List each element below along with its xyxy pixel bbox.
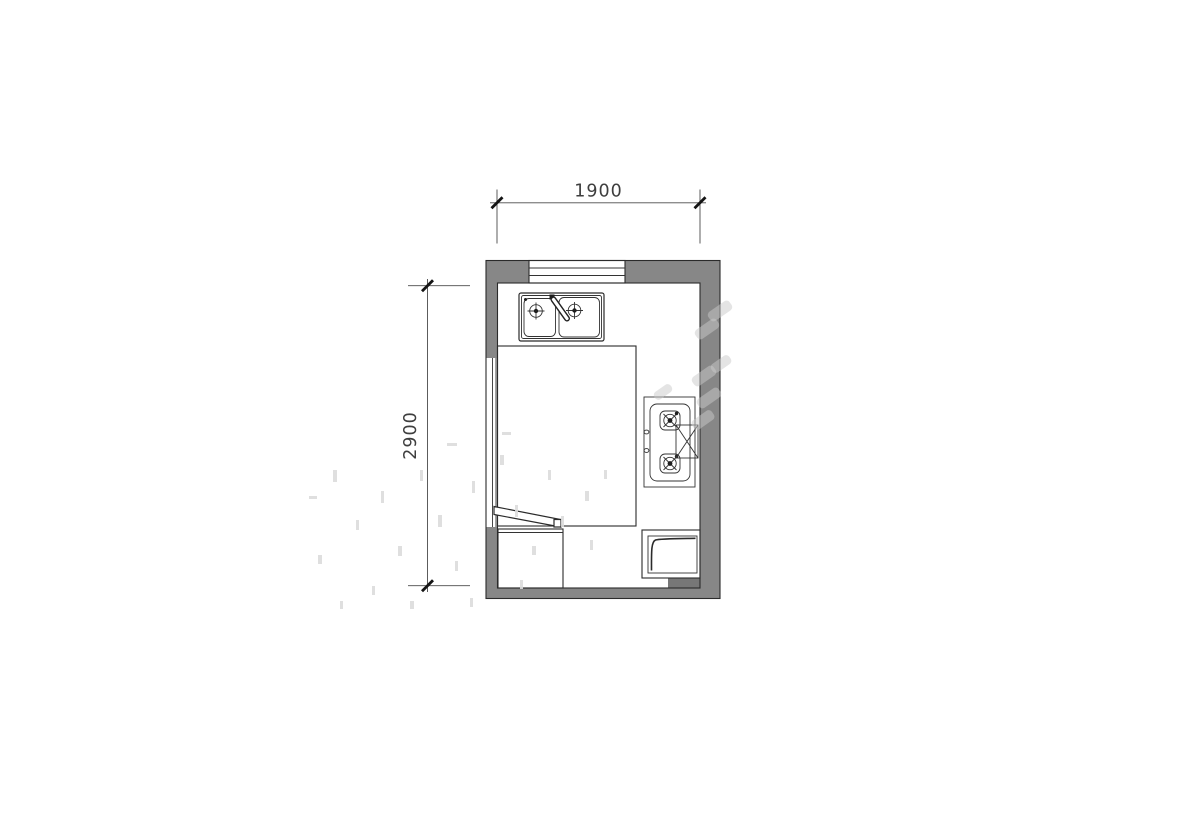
watermark-dash xyxy=(410,601,414,609)
watermark-dash xyxy=(356,520,359,530)
sink-corner-dot xyxy=(524,298,527,301)
drain-center xyxy=(572,308,576,312)
wall-bottom xyxy=(486,588,720,599)
watermark-dash xyxy=(309,496,317,499)
dimension-left: 2900 xyxy=(401,279,470,592)
watermark-bar xyxy=(652,383,674,402)
burner-dot xyxy=(675,412,678,415)
wall-left-lower xyxy=(486,527,498,588)
watermark-dash xyxy=(333,470,337,482)
knob-icon xyxy=(644,430,649,434)
watermark-dash xyxy=(472,481,475,493)
watermark-dash xyxy=(372,586,375,595)
watermark-dash xyxy=(548,470,551,480)
base-cabinet xyxy=(498,529,563,588)
wall-top-right xyxy=(625,261,720,284)
counter-edge xyxy=(498,346,637,526)
knob-icon xyxy=(644,449,649,453)
sink-outer-rim xyxy=(519,293,604,341)
watermark-dash xyxy=(318,555,322,564)
watermark-dash xyxy=(604,470,607,479)
watermark-dash xyxy=(590,540,593,550)
dimension-left-label: 2900 xyxy=(401,411,421,460)
dimension-top: 1900 xyxy=(490,182,706,244)
wall-top-left xyxy=(486,261,529,284)
watermark-dash xyxy=(447,443,457,446)
watermark-dash xyxy=(561,516,564,527)
burner-center xyxy=(668,461,673,466)
appliance-outer xyxy=(642,530,700,578)
door-opening xyxy=(493,358,497,527)
watermark-dash xyxy=(381,491,384,503)
watermark-dash xyxy=(532,546,536,555)
wall-left-upper xyxy=(486,283,498,358)
sink xyxy=(519,293,604,341)
floor-plan-canvas: 1900 2900 xyxy=(0,0,1198,831)
burner-center xyxy=(668,418,673,423)
window xyxy=(529,261,625,284)
watermark-dash xyxy=(515,505,518,517)
wall-duct xyxy=(668,578,700,588)
dimension-top-label: 1900 xyxy=(574,182,623,202)
floor-plan-svg: 1900 2900 xyxy=(0,0,1198,831)
appliance-curve xyxy=(651,538,695,570)
watermark-dash xyxy=(340,601,343,609)
watermark-dash xyxy=(455,561,458,571)
appliance xyxy=(642,530,700,578)
watermark-dash xyxy=(502,432,511,435)
watermark-dash xyxy=(470,598,473,607)
watermark-dash xyxy=(398,546,402,556)
watermark-dash xyxy=(438,515,442,527)
door-leaf-panel xyxy=(494,507,561,528)
watermark-dash xyxy=(585,491,589,501)
door-leaf-tip xyxy=(554,520,561,528)
appliance-inner xyxy=(648,536,697,573)
watermark-dash xyxy=(500,455,504,465)
watermark-dash xyxy=(420,470,423,481)
base-cabinet-box xyxy=(498,529,563,588)
door-leaf xyxy=(494,507,561,528)
watermark-dash xyxy=(520,580,523,589)
drain-center xyxy=(534,309,538,313)
window-frame xyxy=(529,261,625,284)
